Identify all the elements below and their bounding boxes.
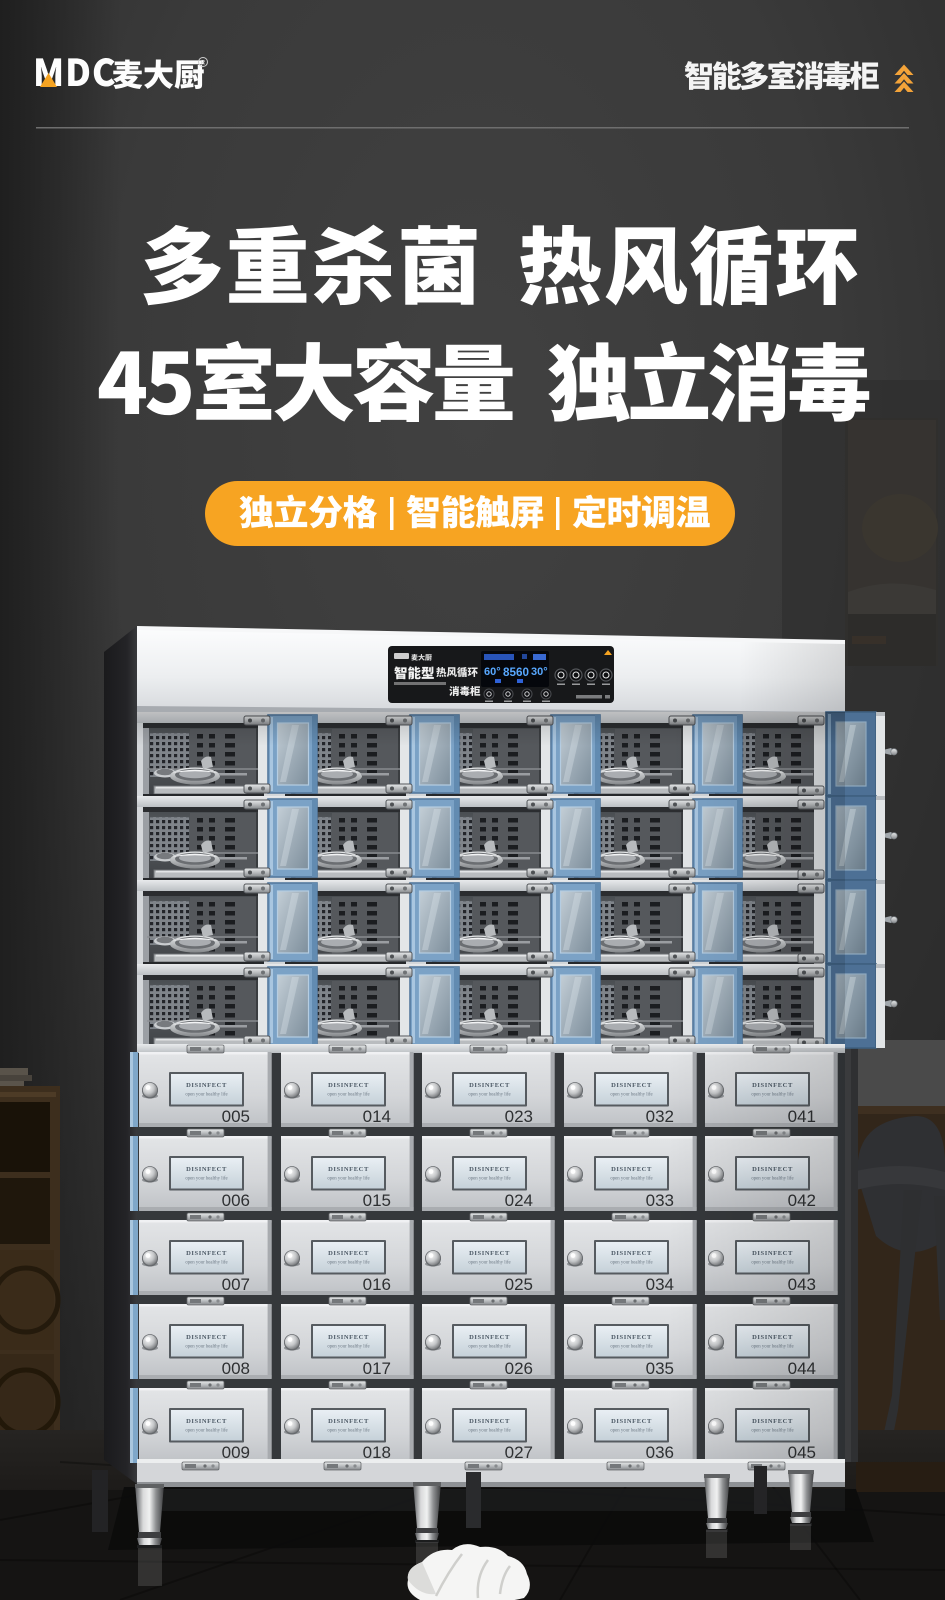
svg-text:8560: 8560 — [503, 665, 529, 679]
svg-text:30°: 30° — [531, 666, 548, 678]
svg-text:R: R — [201, 61, 206, 67]
svg-text:60°: 60° — [484, 666, 501, 678]
